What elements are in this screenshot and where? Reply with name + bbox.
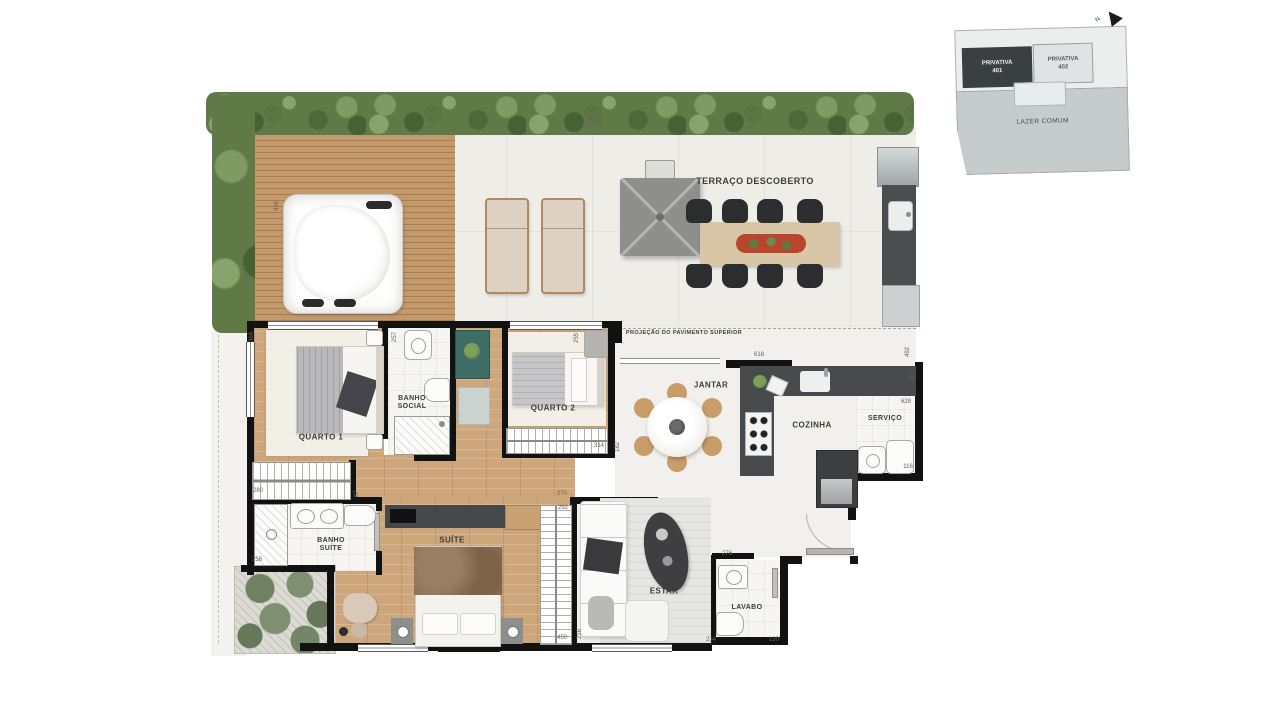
dimension-label: 211	[910, 372, 916, 382]
dimension-label: 368	[249, 332, 255, 342]
dimension-label: 276	[722, 551, 732, 557]
room-label: COZINHA	[792, 420, 831, 429]
dimension-label: 280	[253, 488, 263, 494]
dimension-label: 120	[769, 637, 779, 643]
room-label: ESTAR	[650, 586, 679, 595]
room-label: QUARTO 1	[299, 432, 343, 441]
dimension-label: 255	[574, 333, 580, 343]
dimension-label: 216	[577, 629, 583, 639]
dimension-label: 1336.5	[583, 123, 601, 129]
room-label: BANHO SOCIAL	[398, 395, 427, 411]
room-label: TERRAÇO DESCOBERTO	[696, 176, 814, 186]
dimension-label: 292	[558, 505, 568, 511]
room-label: LAVABO	[732, 604, 763, 612]
dimension-label: 416	[274, 201, 280, 211]
room-label: SUÍTE	[439, 535, 465, 544]
room-label: BANHO SUÍTE	[317, 537, 345, 553]
room-label: QUARTO 2	[531, 403, 575, 412]
dimension-label: 270	[557, 491, 567, 497]
dimension-label: 257	[392, 332, 398, 342]
room-label: SERVIÇO	[868, 415, 902, 423]
dimension-label: 450	[557, 635, 567, 641]
dimension-label: 87	[354, 491, 360, 498]
dimension-label: 492	[905, 347, 911, 357]
floor-plan-canvas: PRIVATIVA 401 PRIVATIVA 402 LAZER COMUM …	[0, 0, 1281, 720]
dimension-label: 258	[252, 557, 262, 563]
labels-layer: TERRAÇO DESCOBERTOPROJEÇÃO DO PAVIMENTO …	[0, 0, 1281, 720]
dimension-label: 618	[754, 352, 764, 358]
dimension-label: 314	[594, 443, 604, 449]
dimension-label: 628	[901, 399, 911, 405]
dimension-label: 234	[706, 637, 716, 643]
dimension-label: 182	[615, 442, 621, 452]
room-label: PROJEÇÃO DO PAVIMENTO SUPERIOR	[626, 330, 742, 336]
dimension-label: 116	[903, 464, 913, 470]
room-label: JANTAR	[694, 380, 728, 389]
